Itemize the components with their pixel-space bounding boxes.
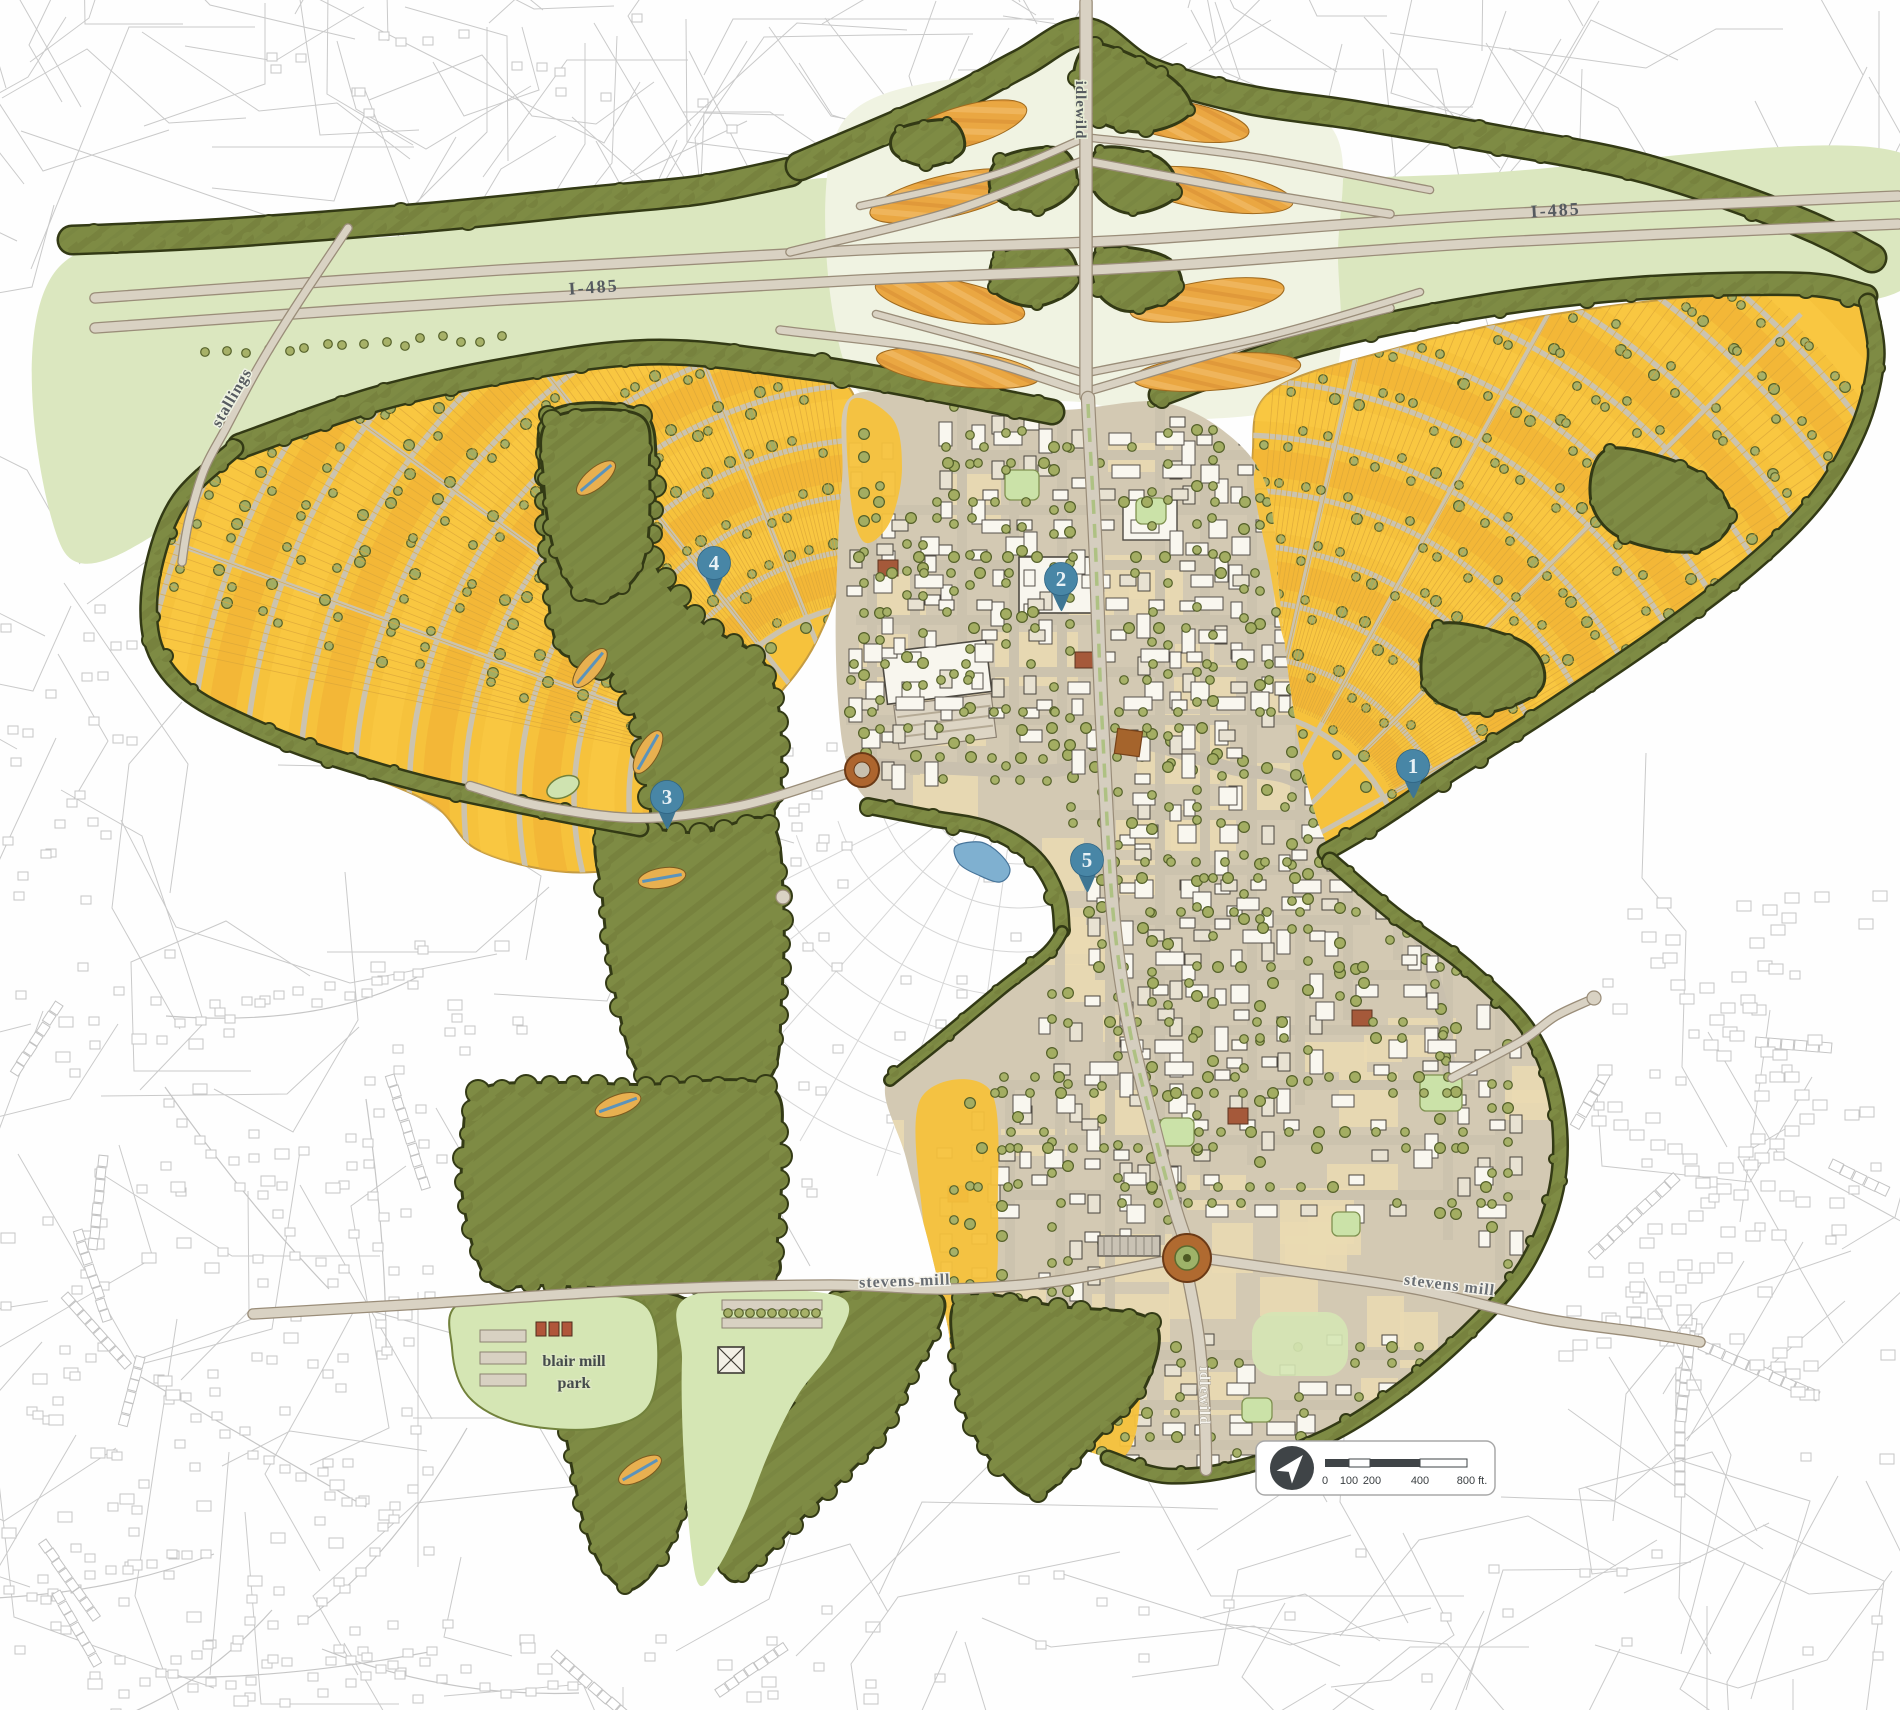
svg-text:blair mill: blair mill	[542, 1353, 606, 1370]
svg-text:stevens mill: stevens mill	[859, 1271, 951, 1291]
svg-text:400: 400	[1411, 1475, 1429, 1487]
svg-text:2: 2	[1056, 567, 1067, 591]
svg-text:idlewild: idlewild	[1072, 81, 1088, 140]
svg-text:4: 4	[709, 551, 720, 575]
svg-text:0: 0	[1322, 1475, 1328, 1487]
svg-text:1: 1	[1408, 754, 1419, 778]
svg-text:3: 3	[662, 785, 673, 809]
svg-text:park: park	[558, 1375, 591, 1392]
svg-text:5: 5	[1082, 848, 1093, 872]
svg-text:100: 100	[1340, 1475, 1358, 1487]
svg-text:200: 200	[1363, 1475, 1381, 1487]
svg-text:800 ft.: 800 ft.	[1457, 1475, 1488, 1487]
svg-text:idlewild: idlewild	[1196, 1367, 1212, 1426]
svg-text:I-485: I-485	[568, 275, 619, 298]
svg-text:I-485: I-485	[1530, 199, 1581, 222]
